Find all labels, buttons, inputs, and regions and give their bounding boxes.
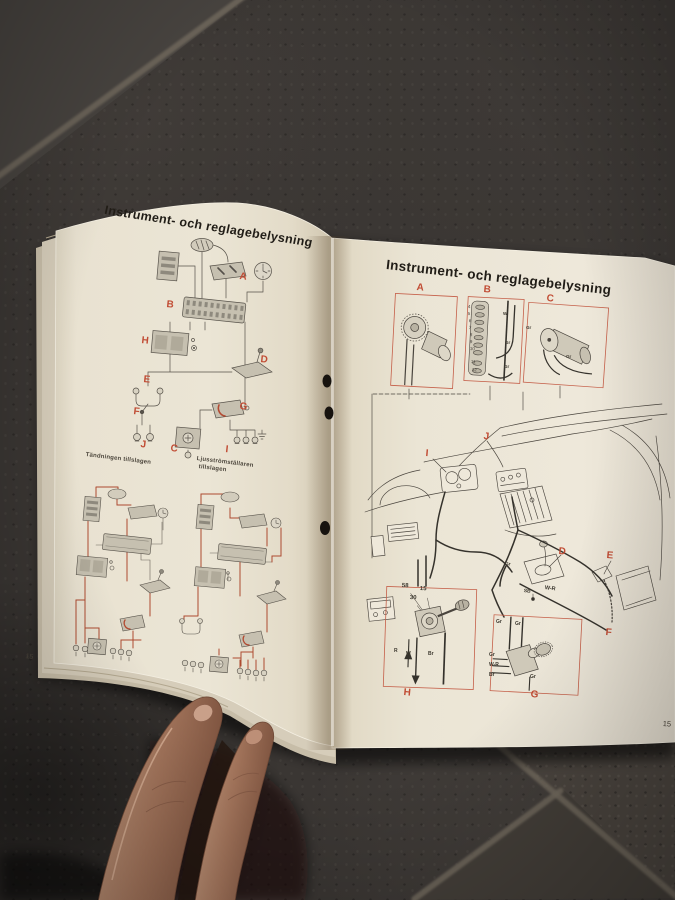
book-scene-svg <box>0 0 675 900</box>
photo-of-open-manual: Instrument- och reglagebelysning A B H D… <box>0 0 675 900</box>
spine-shadow <box>306 236 352 750</box>
hand <box>0 697 308 900</box>
spine-edge-highlight <box>331 238 334 746</box>
